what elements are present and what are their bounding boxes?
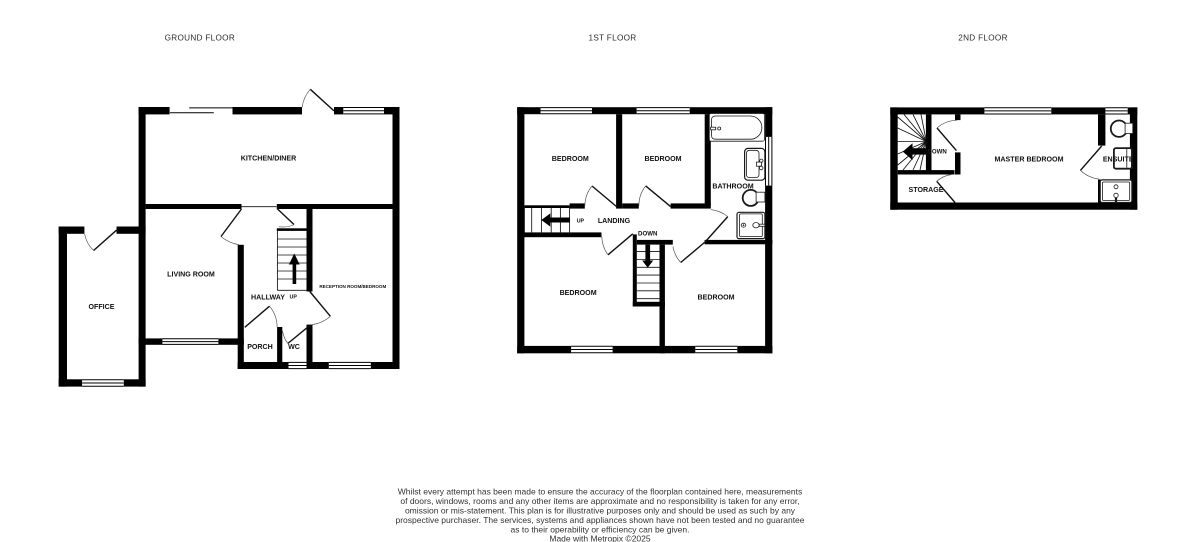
svg-text:2ND FLOOR: 2ND FLOOR	[958, 34, 1008, 43]
svg-text:of doors, windows, rooms and a: of doors, windows, rooms and any other i…	[400, 496, 799, 506]
svg-text:OFFICE: OFFICE	[88, 303, 114, 311]
svg-text:LANDING: LANDING	[598, 217, 631, 225]
svg-text:STORAGE: STORAGE	[909, 186, 944, 194]
svg-text:BEDROOM: BEDROOM	[644, 155, 681, 163]
svg-text:BEDROOM: BEDROOM	[697, 293, 734, 301]
svg-text:1ST FLOOR: 1ST FLOOR	[588, 34, 636, 43]
svg-text:PORCH: PORCH	[247, 343, 273, 351]
svg-text:DOWN: DOWN	[638, 230, 657, 237]
svg-text:UP: UP	[290, 295, 298, 301]
svg-text:BEDROOM: BEDROOM	[552, 155, 589, 163]
svg-text:prospective purchaser. The ser: prospective purchaser. The services, sys…	[395, 515, 804, 525]
svg-text:DOWN: DOWN	[928, 149, 947, 156]
svg-text:GROUND FLOOR: GROUND FLOOR	[165, 34, 235, 43]
svg-text:RECEPTION ROOM/BEDROOM: RECEPTION ROOM/BEDROOM	[319, 284, 386, 289]
svg-text:UP: UP	[577, 218, 585, 224]
svg-text:BEDROOM: BEDROOM	[560, 289, 597, 297]
svg-text:Made with Metropix ©2025: Made with Metropix ©2025	[549, 534, 651, 542]
svg-text:omission or mis-statement. Thi: omission or mis-statement. This plan is …	[405, 506, 796, 516]
svg-text:WC: WC	[288, 343, 300, 351]
svg-text:KITCHEN/DINER: KITCHEN/DINER	[241, 155, 297, 163]
svg-text:Whilst every attempt has been: Whilst every attempt has been made to en…	[398, 487, 802, 497]
svg-text:BATHROOM: BATHROOM	[712, 183, 753, 191]
svg-text:MASTER BEDROOM: MASTER BEDROOM	[995, 156, 1064, 164]
svg-text:LIVING ROOM: LIVING ROOM	[167, 271, 215, 279]
svg-text:ENSUITE: ENSUITE	[1103, 156, 1134, 164]
svg-text:HALLWAY: HALLWAY	[251, 294, 285, 302]
